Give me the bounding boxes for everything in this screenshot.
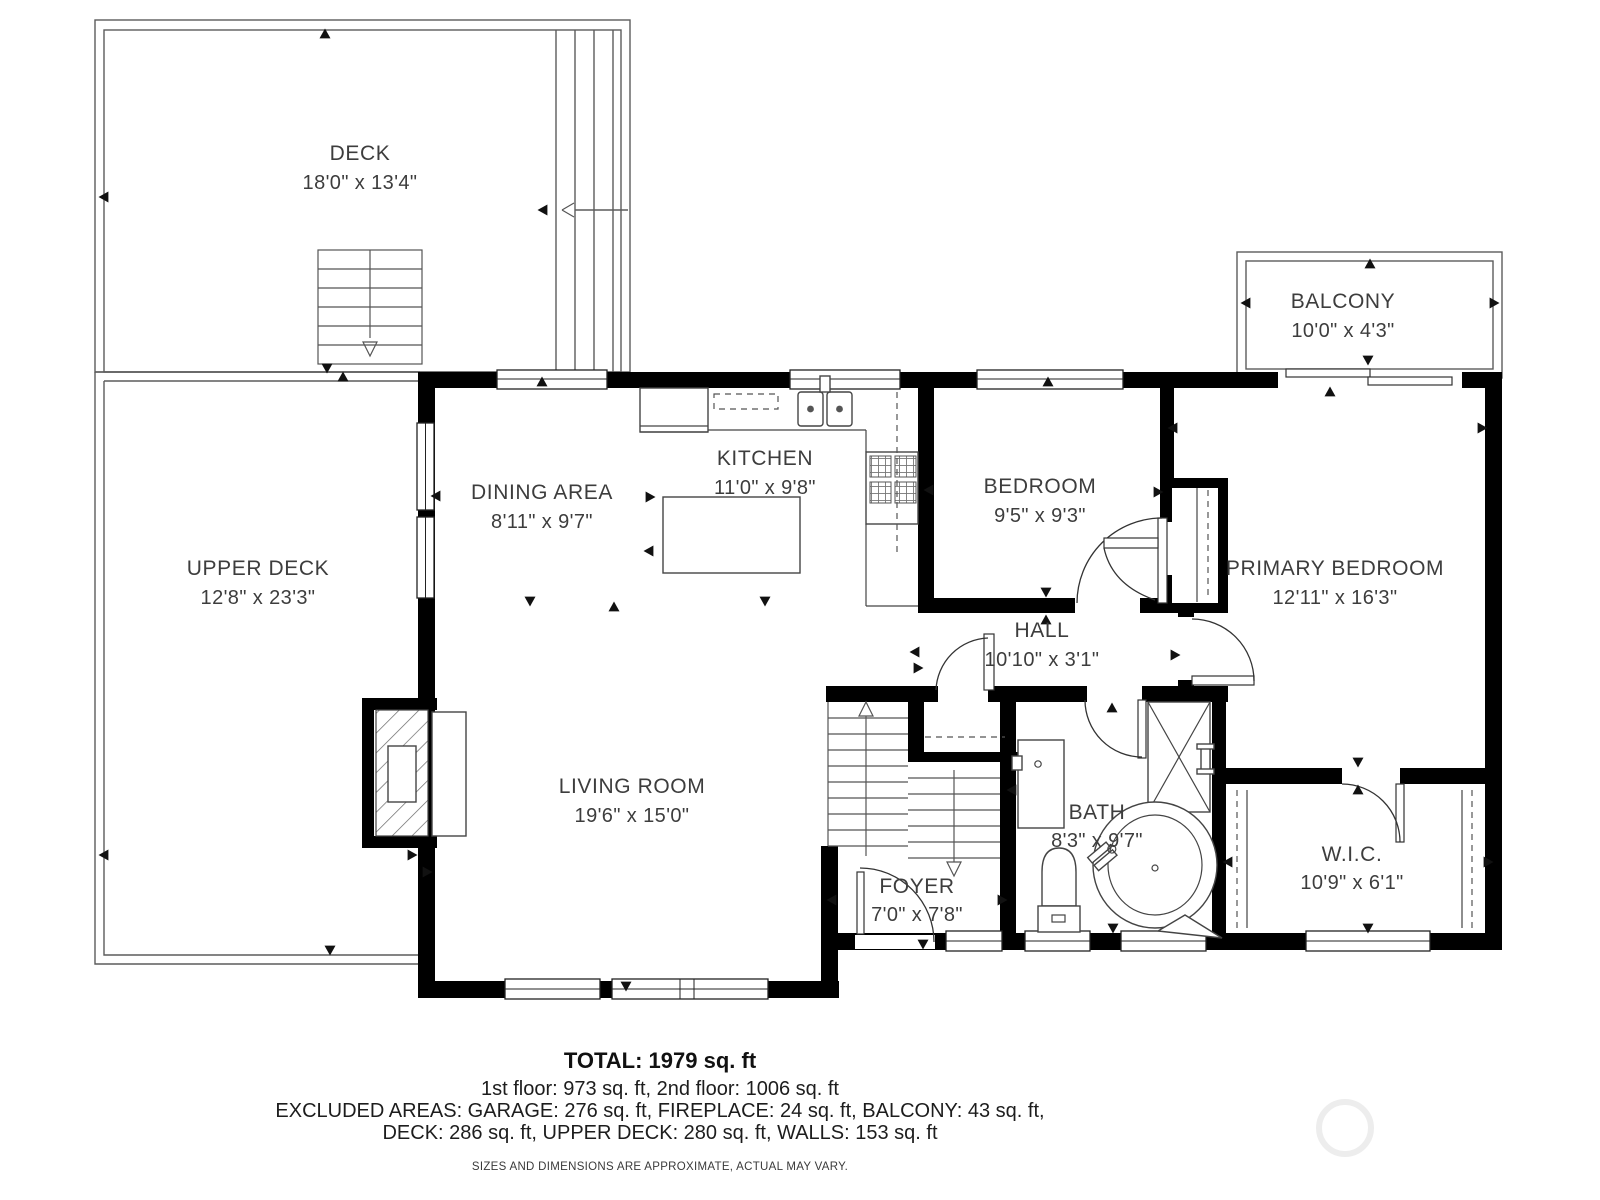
dimension-tick-icon <box>1490 298 1500 309</box>
dimension-tick-icon <box>760 597 771 607</box>
vanity-icon <box>1012 740 1064 828</box>
dims-upper-deck: 12'8" x 23'3" <box>201 587 316 609</box>
summary-disclaimer: SIZES AND DIMENSIONS ARE APPROXIMATE, AC… <box>472 1161 848 1173</box>
room-labels: DECK 18'0" x 13'4" UPPER DECK 12'8" x 23… <box>187 142 1444 926</box>
label-living-room: LIVING ROOM <box>559 775 706 798</box>
summary-floors: 1st floor: 973 sq. ft, 2nd floor: 1006 s… <box>481 1078 839 1100</box>
wall-living-foyer <box>821 846 838 938</box>
dimension-tick-icon <box>644 546 654 557</box>
window-living-1 <box>505 979 600 999</box>
toilet-icon <box>1038 848 1080 932</box>
label-hall: HALL <box>1015 619 1070 642</box>
wall-primary-wic <box>1400 768 1502 784</box>
refrigerator-icon <box>640 388 708 432</box>
deck-outer-rail <box>95 20 630 372</box>
dims-wic: 10'9" x 6'1" <box>1300 872 1403 894</box>
dims-foyer: 7'0" x 7'8" <box>871 904 963 926</box>
label-wic: W.I.C. <box>1322 843 1383 866</box>
dims-balcony: 10'0" x 4'3" <box>1291 320 1394 342</box>
window-living-2 <box>612 979 768 999</box>
window-left-upper <box>417 423 434 510</box>
window-left-lower <box>417 517 434 598</box>
dims-primary-bedroom: 12'11" x 16'3" <box>1273 587 1398 609</box>
stairs-up-flight <box>828 702 908 856</box>
dims-kitchen: 11'0" x 9'8" <box>714 477 816 499</box>
stairs-down-flight <box>908 770 1000 876</box>
dimension-tick-icon <box>538 205 548 216</box>
label-foyer: FOYER <box>879 875 954 898</box>
floor-plan-page: DECK 18'0" x 13'4" UPPER DECK 12'8" x 23… <box>0 0 1600 1200</box>
stove-icon <box>866 452 918 524</box>
dimension-tick-icon <box>1041 588 1052 598</box>
watermark-icon <box>1319 1102 1371 1154</box>
closet-door <box>1104 538 1158 600</box>
bath-door <box>1085 686 1146 758</box>
dimension-tick-icon <box>525 597 536 607</box>
summary-block: TOTAL: 1979 sq. ft 1st floor: 973 sq. ft… <box>275 1048 1044 1173</box>
dimension-tick-icon <box>646 492 656 503</box>
deck-area <box>95 20 630 372</box>
dimension-tick-icon <box>1363 356 1374 366</box>
label-bedroom: BEDROOM <box>984 475 1097 498</box>
stairs-up-arrow-icon <box>859 702 873 716</box>
dimension-tick-icon <box>1365 259 1376 269</box>
label-bath: BATH <box>1069 801 1126 824</box>
deck-ladder-arrow-icon <box>562 203 574 217</box>
stairs-down-arrow-icon <box>947 862 961 876</box>
dimension-tick-icon <box>338 372 349 382</box>
wall-bath-wic <box>1212 686 1226 950</box>
summary-excluded-2: DECK: 286 sq. ft, UPPER DECK: 280 sq. ft… <box>382 1122 937 1144</box>
wall-kitchen-bedroom <box>918 388 934 613</box>
dimension-tick-icon <box>1353 758 1364 768</box>
summary-excluded-1: EXCLUDED AREAS: GARAGE: 276 sq. ft, FIRE… <box>275 1100 1044 1122</box>
dimension-tick-icon <box>1108 924 1119 934</box>
dimension-tick-icon <box>325 946 336 956</box>
balcony-sliding-door <box>1278 369 1462 388</box>
dimension-tick-icon <box>914 663 924 674</box>
dimension-tick-icon <box>1353 785 1364 795</box>
deck-inner-rail <box>104 30 621 372</box>
fireplace-hearth <box>432 712 466 836</box>
dims-deck: 18'0" x 13'4" <box>303 172 418 194</box>
dims-dining: 8'11" x 9'7" <box>491 511 593 533</box>
wall-foyer-bath <box>1000 686 1016 950</box>
dims-living-room: 19'6" x 15'0" <box>575 805 690 827</box>
dims-bath: 8'3" x 9'7" <box>1051 830 1143 852</box>
label-upper-deck: UPPER DECK <box>187 557 330 580</box>
window-foyer <box>946 931 1002 951</box>
shower-icon <box>1148 702 1214 812</box>
fireplace <box>362 698 466 848</box>
window-kitchen <box>790 370 900 389</box>
label-balcony: BALCONY <box>1291 290 1396 313</box>
dimension-tick-icon <box>910 647 920 658</box>
dims-bedroom: 9'5" x 9'3" <box>994 505 1086 527</box>
deck-stairs <box>318 250 422 364</box>
summary-total: TOTAL: 1979 sq. ft <box>564 1048 757 1073</box>
dims-hall: 10'10" x 3'1" <box>985 649 1100 671</box>
label-primary-bedroom: PRIMARY BEDROOM <box>1226 557 1444 580</box>
deck-ladder <box>556 30 628 372</box>
label-deck: DECK <box>330 142 391 165</box>
floor-plan-svg: DECK 18'0" x 13'4" UPPER DECK 12'8" x 23… <box>0 0 1600 1200</box>
upper-deck-area <box>95 372 420 964</box>
label-dining: DINING AREA <box>471 481 613 504</box>
window-wic <box>1306 931 1430 951</box>
window-bath-1 <box>1025 931 1090 951</box>
window-dining <box>497 370 607 389</box>
stairs-down-arrow-icon <box>363 342 377 356</box>
kitchen-island <box>663 497 800 573</box>
label-kitchen: KITCHEN <box>717 447 813 470</box>
primary-bedroom-door <box>1178 617 1254 685</box>
wall-bedroom-primary <box>1160 388 1174 482</box>
upper-cabinet-dashed <box>714 394 778 409</box>
dimension-tick-icon <box>609 602 620 612</box>
dimension-tick-icon <box>408 850 418 861</box>
dimension-tick-icon <box>1107 703 1118 713</box>
wic-door <box>1342 768 1404 842</box>
